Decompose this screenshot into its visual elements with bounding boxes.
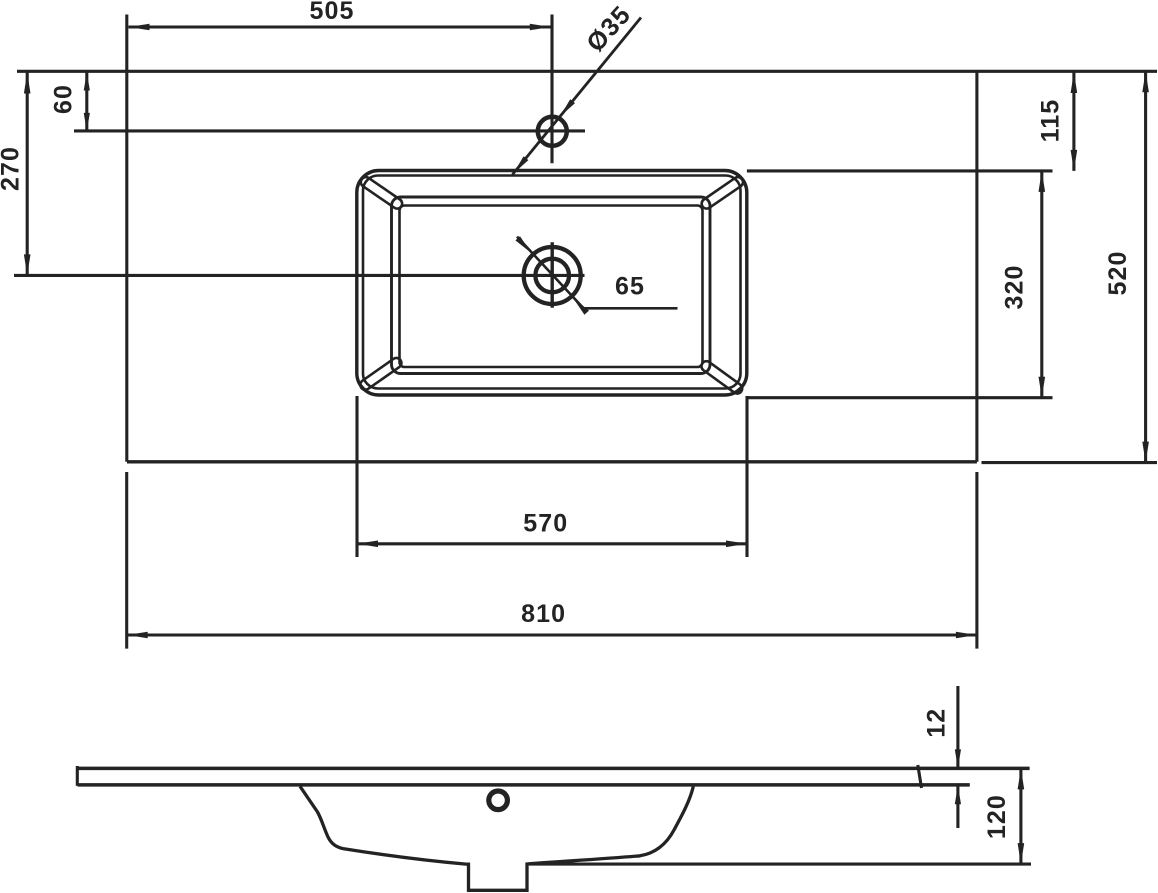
svg-text:270: 270 (0, 146, 25, 191)
svg-text:12: 12 (922, 708, 950, 738)
svg-text:115: 115 (1036, 99, 1064, 143)
svg-text:120: 120 (983, 794, 1011, 839)
svg-text:60: 60 (50, 84, 78, 114)
svg-text:520: 520 (1104, 250, 1132, 295)
svg-text:65: 65 (615, 273, 645, 301)
svg-text:570: 570 (523, 510, 568, 538)
svg-text:505: 505 (309, 0, 354, 25)
svg-text:320: 320 (1001, 264, 1029, 309)
svg-text:810: 810 (521, 600, 566, 628)
svg-text:Ø35: Ø35 (581, 0, 636, 57)
